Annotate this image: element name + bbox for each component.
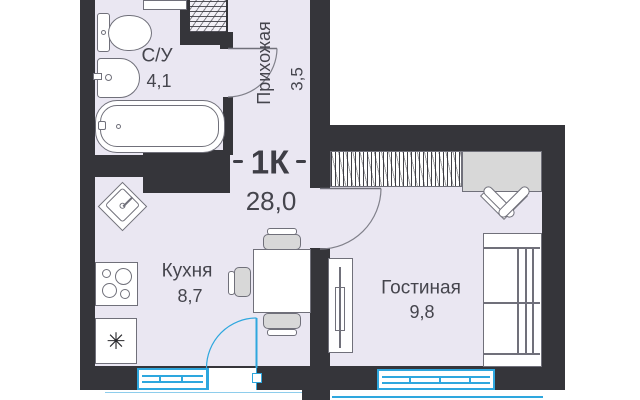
bathtub-drain [116, 124, 121, 129]
stove-burner [115, 268, 132, 285]
tv-panel-line [339, 267, 341, 348]
window-glass-line [142, 381, 203, 383]
wall-left [80, 0, 95, 390]
bathtub-faucet [98, 121, 106, 130]
sink-faucet [93, 73, 102, 80]
type-label-dash [296, 160, 306, 163]
window-tick [439, 378, 441, 383]
window-tick [469, 378, 471, 383]
fridge: ✳ [95, 318, 137, 364]
wardrobe [330, 151, 462, 187]
stove-burner [120, 289, 130, 299]
stove-burner [102, 283, 117, 298]
window-tick [181, 377, 183, 382]
sofa-backrest-line [532, 247, 534, 354]
toilet-button [101, 30, 106, 35]
dining-chair [263, 313, 301, 329]
sofa-footrest-line [484, 353, 540, 355]
wall-living-top [310, 125, 542, 151]
hallway-name: Прихожая [255, 21, 273, 104]
window-glass-line [382, 382, 490, 384]
living-window [377, 369, 495, 390]
sofa-bed [483, 233, 542, 367]
bathroom-name: С/У [141, 47, 172, 66]
stove [95, 262, 138, 306]
wall-living-door-lower [310, 248, 330, 368]
balcony-kitchen [105, 392, 302, 400]
balcony-door-pivot [252, 373, 262, 383]
living-name: Гостиная [381, 279, 461, 298]
hallway-area: 3,5 [289, 67, 306, 91]
ventilation-shaft [190, 0, 228, 32]
wall-shaft-block [143, 150, 230, 193]
floor-plan: ✳ С/У 4,1 Прихожая 3,5 Кухня 8,7 Гостина… [0, 0, 640, 400]
floor-living-doorway [310, 188, 330, 248]
balcony-rail-line [332, 396, 543, 398]
sofa-backrest-line [525, 247, 527, 354]
living-area: 9,8 [409, 303, 434, 321]
dining-table [253, 249, 311, 313]
balcony-living [332, 391, 543, 400]
total-area-label: 28,0 [246, 188, 297, 214]
kitchen-area: 8,7 [177, 287, 202, 305]
wall-bath-door-jamb-top [220, 32, 233, 49]
dining-chair [263, 234, 301, 250]
wall-bath-bottom [80, 155, 143, 177]
wall-living-right [542, 125, 565, 390]
sofa-seat-divider [484, 302, 540, 304]
type-label-dash [233, 160, 243, 163]
window-glass-line [142, 375, 203, 377]
kitchen-name: Кухня [162, 262, 213, 281]
balcony-door-opening [208, 368, 257, 390]
window-tick [409, 378, 411, 383]
sofa-backrest-line [517, 247, 519, 354]
desk [462, 151, 542, 192]
bathroom-sink [97, 58, 140, 98]
wall-bottom-column [302, 366, 330, 400]
fridge-icon: ✳ [106, 328, 125, 355]
washing-machine [143, 0, 187, 10]
apartment-type-label: 1К [251, 146, 290, 179]
bathroom-area: 4,1 [146, 72, 171, 90]
kitchen-window [137, 368, 208, 390]
sink-drain [105, 74, 112, 81]
bathtub [95, 100, 225, 153]
dining-chair-back [267, 329, 297, 336]
window-glass-line [382, 376, 490, 378]
dining-chair [234, 267, 251, 297]
stove-burner [102, 269, 111, 278]
wall-hall-right [310, 0, 330, 188]
window-tick [159, 377, 161, 382]
